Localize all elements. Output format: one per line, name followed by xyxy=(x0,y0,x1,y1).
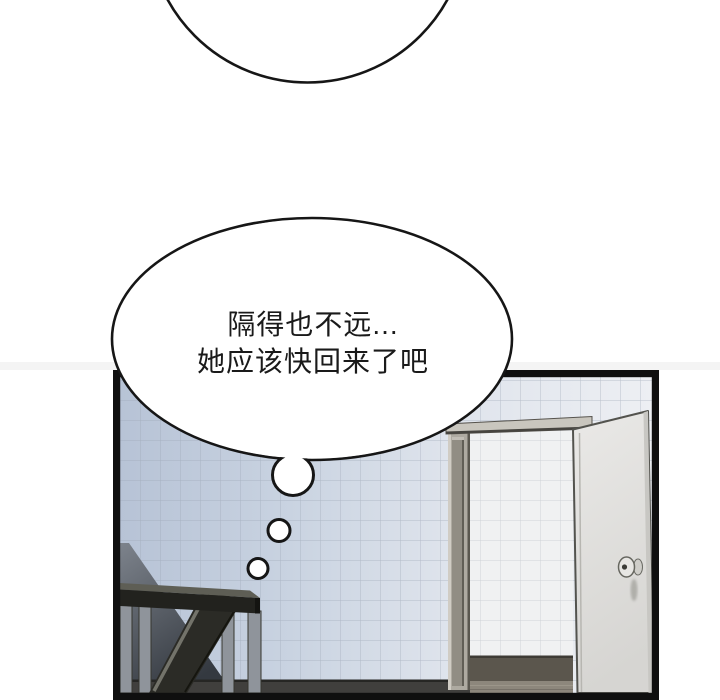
thought-line-1: 隔得也不远... xyxy=(0,306,626,343)
bubble-tail-circle-3 xyxy=(248,559,268,579)
comic-page: 隔得也不远... 她应该快回来了吧 xyxy=(0,0,720,700)
door-frame-jamb xyxy=(448,424,470,690)
open-door xyxy=(573,411,654,693)
doorway-opening xyxy=(470,431,573,693)
thought-bubble-text: 隔得也不远... 她应该快回来了吧 xyxy=(0,306,626,380)
thought-line-2: 她应该快回来了吧 xyxy=(0,343,626,380)
bubble-tail-circle-2 xyxy=(268,520,290,542)
top-thought-bubble xyxy=(148,0,467,83)
